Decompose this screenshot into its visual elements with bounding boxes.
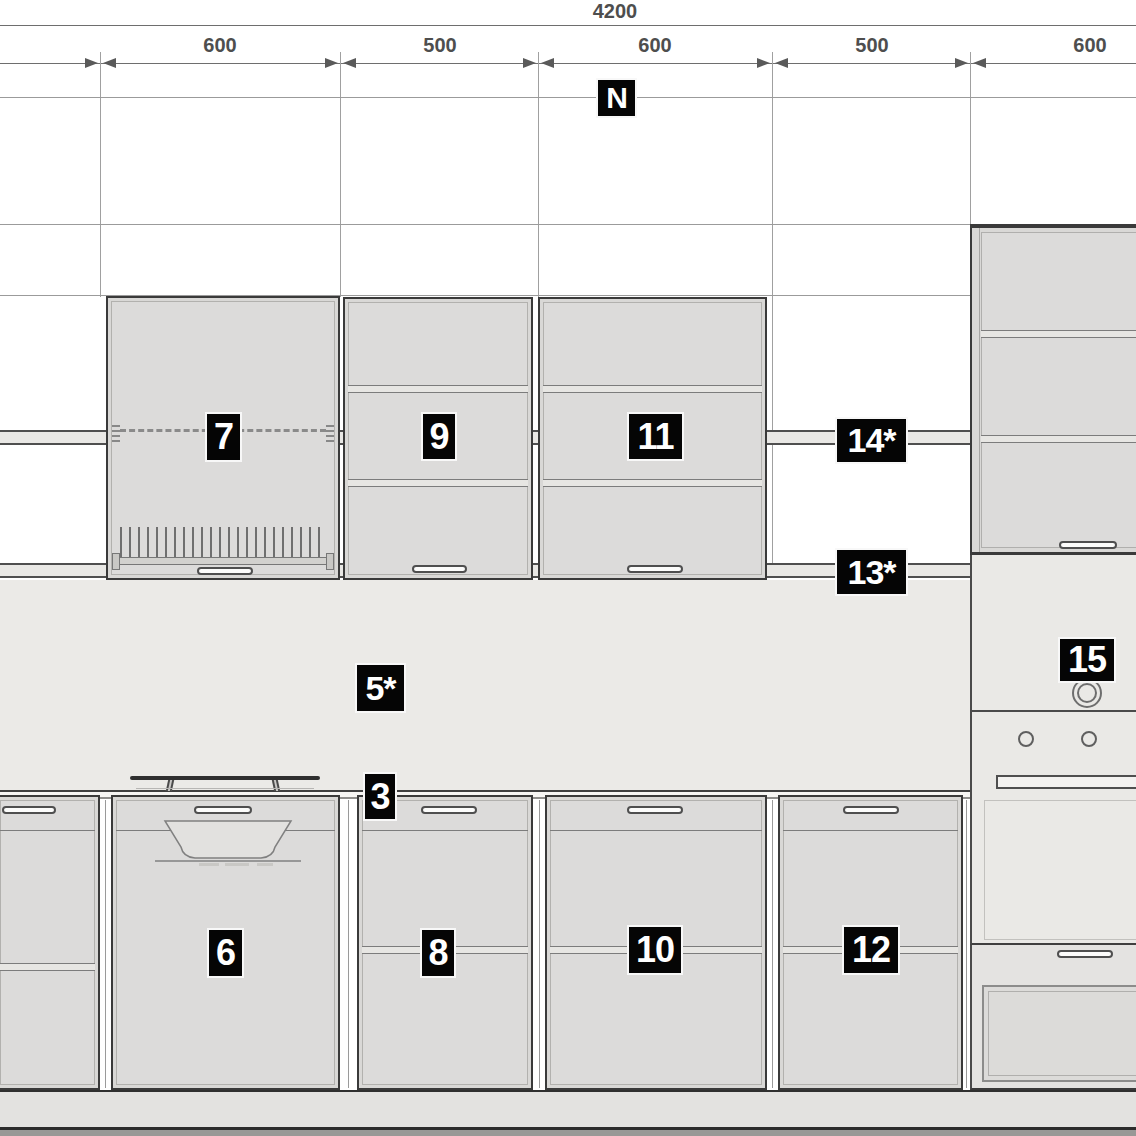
drawer-handle	[627, 806, 683, 814]
extension-line	[100, 52, 101, 297]
door-gap	[543, 479, 762, 487]
sink-bowl-icon	[153, 819, 303, 867]
door-gap	[981, 435, 1136, 443]
rack-end-plate	[112, 553, 120, 570]
rail-bracket-icon	[112, 424, 120, 442]
oven-housing	[970, 555, 1136, 945]
wall-grid-line	[0, 224, 1136, 225]
base-cabinet-partial	[0, 795, 100, 1090]
label-base-cabinet-12: 12	[842, 925, 900, 975]
drawer-gap-line	[0, 830, 95, 831]
drawer-handle	[421, 806, 477, 814]
label-tall-unit: 15	[1058, 637, 1116, 683]
label-wall-cabinet-11: 11	[627, 412, 684, 461]
drawer-handle	[1057, 950, 1113, 958]
drawer-handle	[2, 806, 56, 814]
dimension-segment-2: 500	[390, 34, 490, 57]
door-gap	[543, 385, 762, 393]
dimension-arrow-icon	[955, 58, 968, 68]
drawer-gap-line	[550, 830, 762, 831]
drawer-gap-line	[362, 830, 528, 831]
label-wall-cabinet-7: 7	[205, 412, 242, 462]
kitchen-elevation-drawing: 4200 600 500 600 500 600	[0, 0, 1136, 1136]
dimension-arrow-icon	[775, 58, 788, 68]
extension-line	[970, 52, 971, 226]
dimension-segment-4: 500	[822, 34, 922, 57]
drawer-gap-line	[783, 830, 958, 831]
oven-handle	[996, 775, 1136, 789]
label-base-cabinet-6: 6	[207, 928, 244, 978]
tall-unit-drawer	[970, 945, 1136, 1090]
drawer-handle	[843, 806, 899, 814]
oven-knob-icon	[1081, 731, 1097, 747]
label-rail-lower: 13*	[835, 548, 908, 596]
dimension-arrow-icon	[325, 58, 338, 68]
backsplash-panel	[0, 580, 970, 790]
plate-rack-rail	[116, 557, 330, 565]
dimension-total-line	[0, 25, 1136, 26]
dimension-segment-3: 600	[605, 34, 705, 57]
door-gap	[981, 330, 1136, 338]
drawer-box-inner	[988, 991, 1136, 1076]
dimension-arrow-icon	[103, 58, 116, 68]
dimension-total: 4200	[480, 0, 750, 23]
rack-end-plate	[326, 553, 334, 570]
dimension-arrow-icon	[757, 58, 770, 68]
extension-line	[340, 52, 341, 297]
cabinet-gap-line	[105, 800, 106, 1088]
door-gap	[0, 963, 95, 971]
dimension-arrow-icon	[523, 58, 536, 68]
dimension-arrow-icon	[541, 58, 554, 68]
cabinet-gap-line	[772, 800, 773, 1088]
tall-unit-upper	[970, 228, 1136, 555]
plinth	[0, 1090, 1136, 1127]
label-base-cabinet-10: 10	[627, 925, 683, 975]
label-rail-upper: 14*	[835, 417, 908, 464]
cabinet-door	[981, 232, 1136, 548]
door-gap	[348, 479, 528, 487]
rail-bracket-icon	[326, 424, 334, 442]
door-gap	[348, 385, 528, 393]
extension-line	[538, 52, 539, 297]
extension-line	[772, 52, 773, 565]
cabinet-gap-line	[348, 800, 349, 1088]
cooktop-cutout-line	[136, 788, 314, 789]
door-handle	[627, 565, 683, 573]
frame-line	[979, 228, 980, 552]
cabinet-gap-line	[966, 800, 967, 1088]
drawer-handle	[194, 806, 252, 814]
cabinet-gap-line	[539, 800, 540, 1088]
oven-dial-icon	[1077, 683, 1097, 703]
panel-line	[972, 710, 1136, 712]
label-backsplash: 5*	[355, 663, 406, 713]
dimension-arrow-icon	[973, 58, 986, 68]
door-handle	[1059, 541, 1117, 549]
dimension-segment-1: 600	[170, 34, 270, 57]
dimension-segment-5: 600	[1040, 34, 1136, 57]
oven-knob-icon	[1018, 731, 1034, 747]
cooktop-icon	[130, 776, 320, 780]
north-marker: N	[596, 78, 637, 118]
drawer-box	[982, 985, 1136, 1082]
plate-rack-icon	[120, 527, 326, 558]
label-base-cabinet-8: 8	[420, 928, 456, 978]
oven-door	[984, 800, 1136, 940]
cabinet-front	[0, 800, 95, 1085]
door-handle	[412, 565, 467, 573]
label-wall-cabinet-9: 9	[421, 412, 457, 461]
floor	[0, 1130, 1136, 1136]
dimension-arrow-icon	[85, 58, 98, 68]
dimension-arrow-icon	[343, 58, 356, 68]
door-handle	[197, 567, 253, 575]
label-countertop: 3	[363, 772, 397, 821]
wall-grid-line	[0, 97, 1136, 98]
